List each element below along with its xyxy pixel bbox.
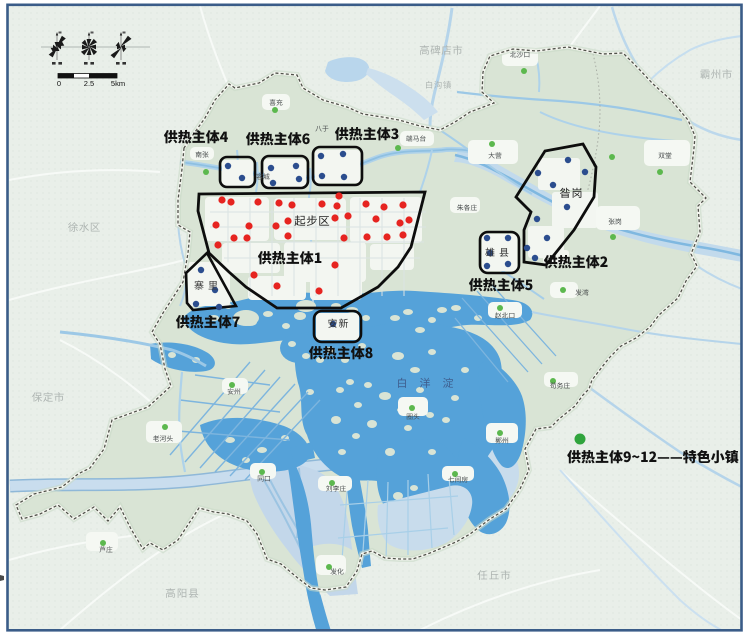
svg-text:0: 0: [57, 79, 61, 88]
svg-text:5km: 5km: [111, 79, 125, 88]
svg-text:2.5: 2.5: [84, 79, 94, 88]
